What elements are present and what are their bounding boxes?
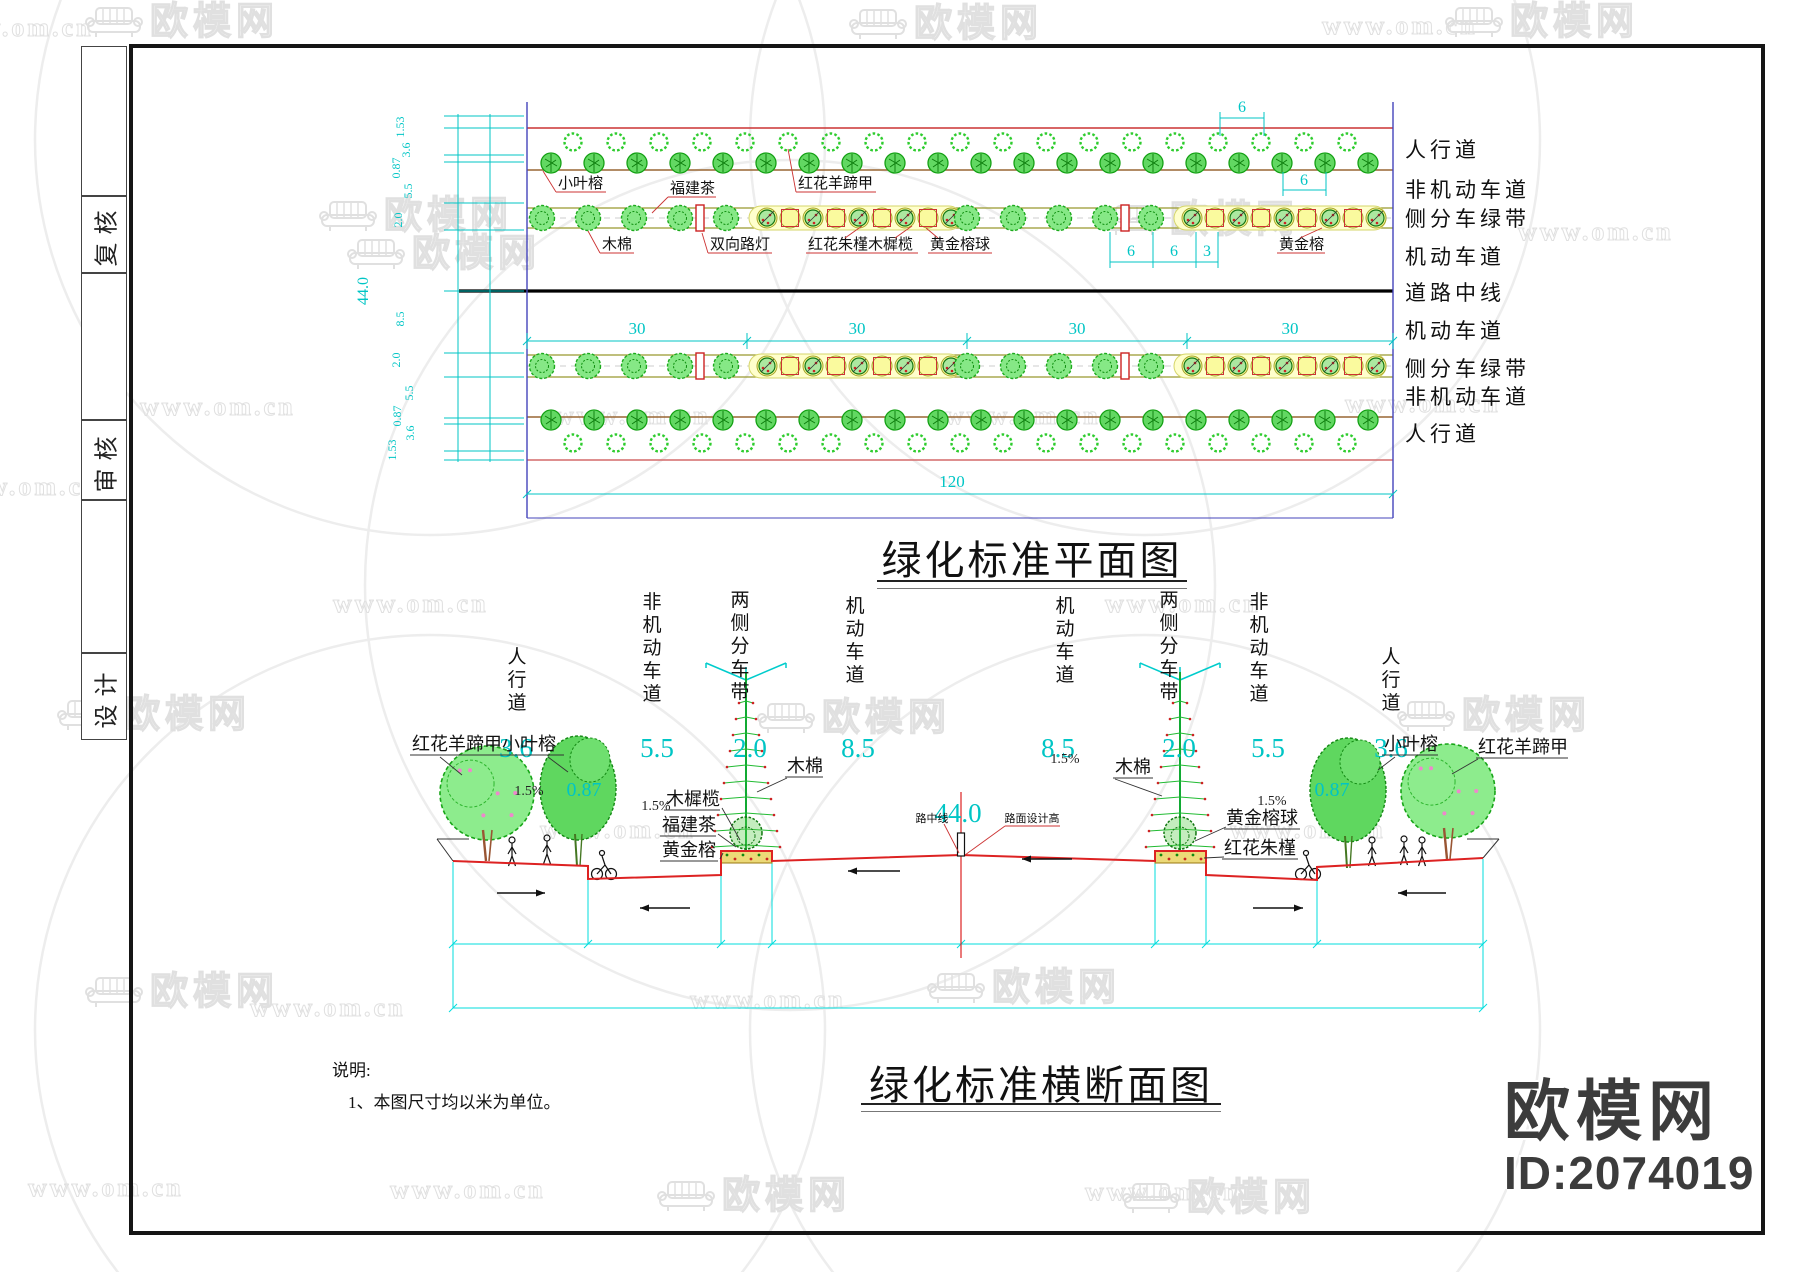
sidebar-box-audit: 审核 [81,420,127,500]
site-logo-id: ID:2074019 [1504,1150,1754,1196]
site-logo: 欧模网 ID:2074019 [1504,1078,1754,1196]
watermark-url-text: www.om.cn [1322,11,1478,40]
sidebar-box-design: 设计 [81,653,127,740]
plan-title-underline-2 [877,588,1187,589]
plan-title-underline [877,580,1187,582]
note-item: 1、本图尺寸均以米为单位。 [348,1088,561,1113]
sidebar-box-review: 复核 [81,196,127,273]
watermark-brand-text: 欧模网 [150,1,279,43]
design-label: 设计 [87,665,122,729]
section-title-underline-2 [861,1111,1221,1112]
review-label: 复核 [87,203,122,267]
sidebar-empty-box [81,46,127,196]
watermark-brand-text: 欧模网 [1510,1,1639,43]
watermark-brand-text: 欧模网 [914,3,1043,45]
section-title-underline [861,1103,1221,1105]
sidebar-empty-box [81,500,127,653]
notes-heading: 说明: [332,1056,371,1081]
site-logo-brand: 欧模网 [1504,1078,1754,1144]
sofa-icon [850,10,906,39]
cad-sheet: 欧模网欧模网欧模网欧模网欧模网欧模网欧模网欧模网欧模网欧模网欧模网欧模网欧模网w… [0,0,1800,1272]
audit-label: 审核 [87,428,122,492]
plan-title: 绿化标准平面图 [862,528,1202,586]
watermark-url-text: www.om.cn [0,13,94,42]
sofa-icon [86,8,142,37]
sidebar-empty-box [81,273,127,420]
